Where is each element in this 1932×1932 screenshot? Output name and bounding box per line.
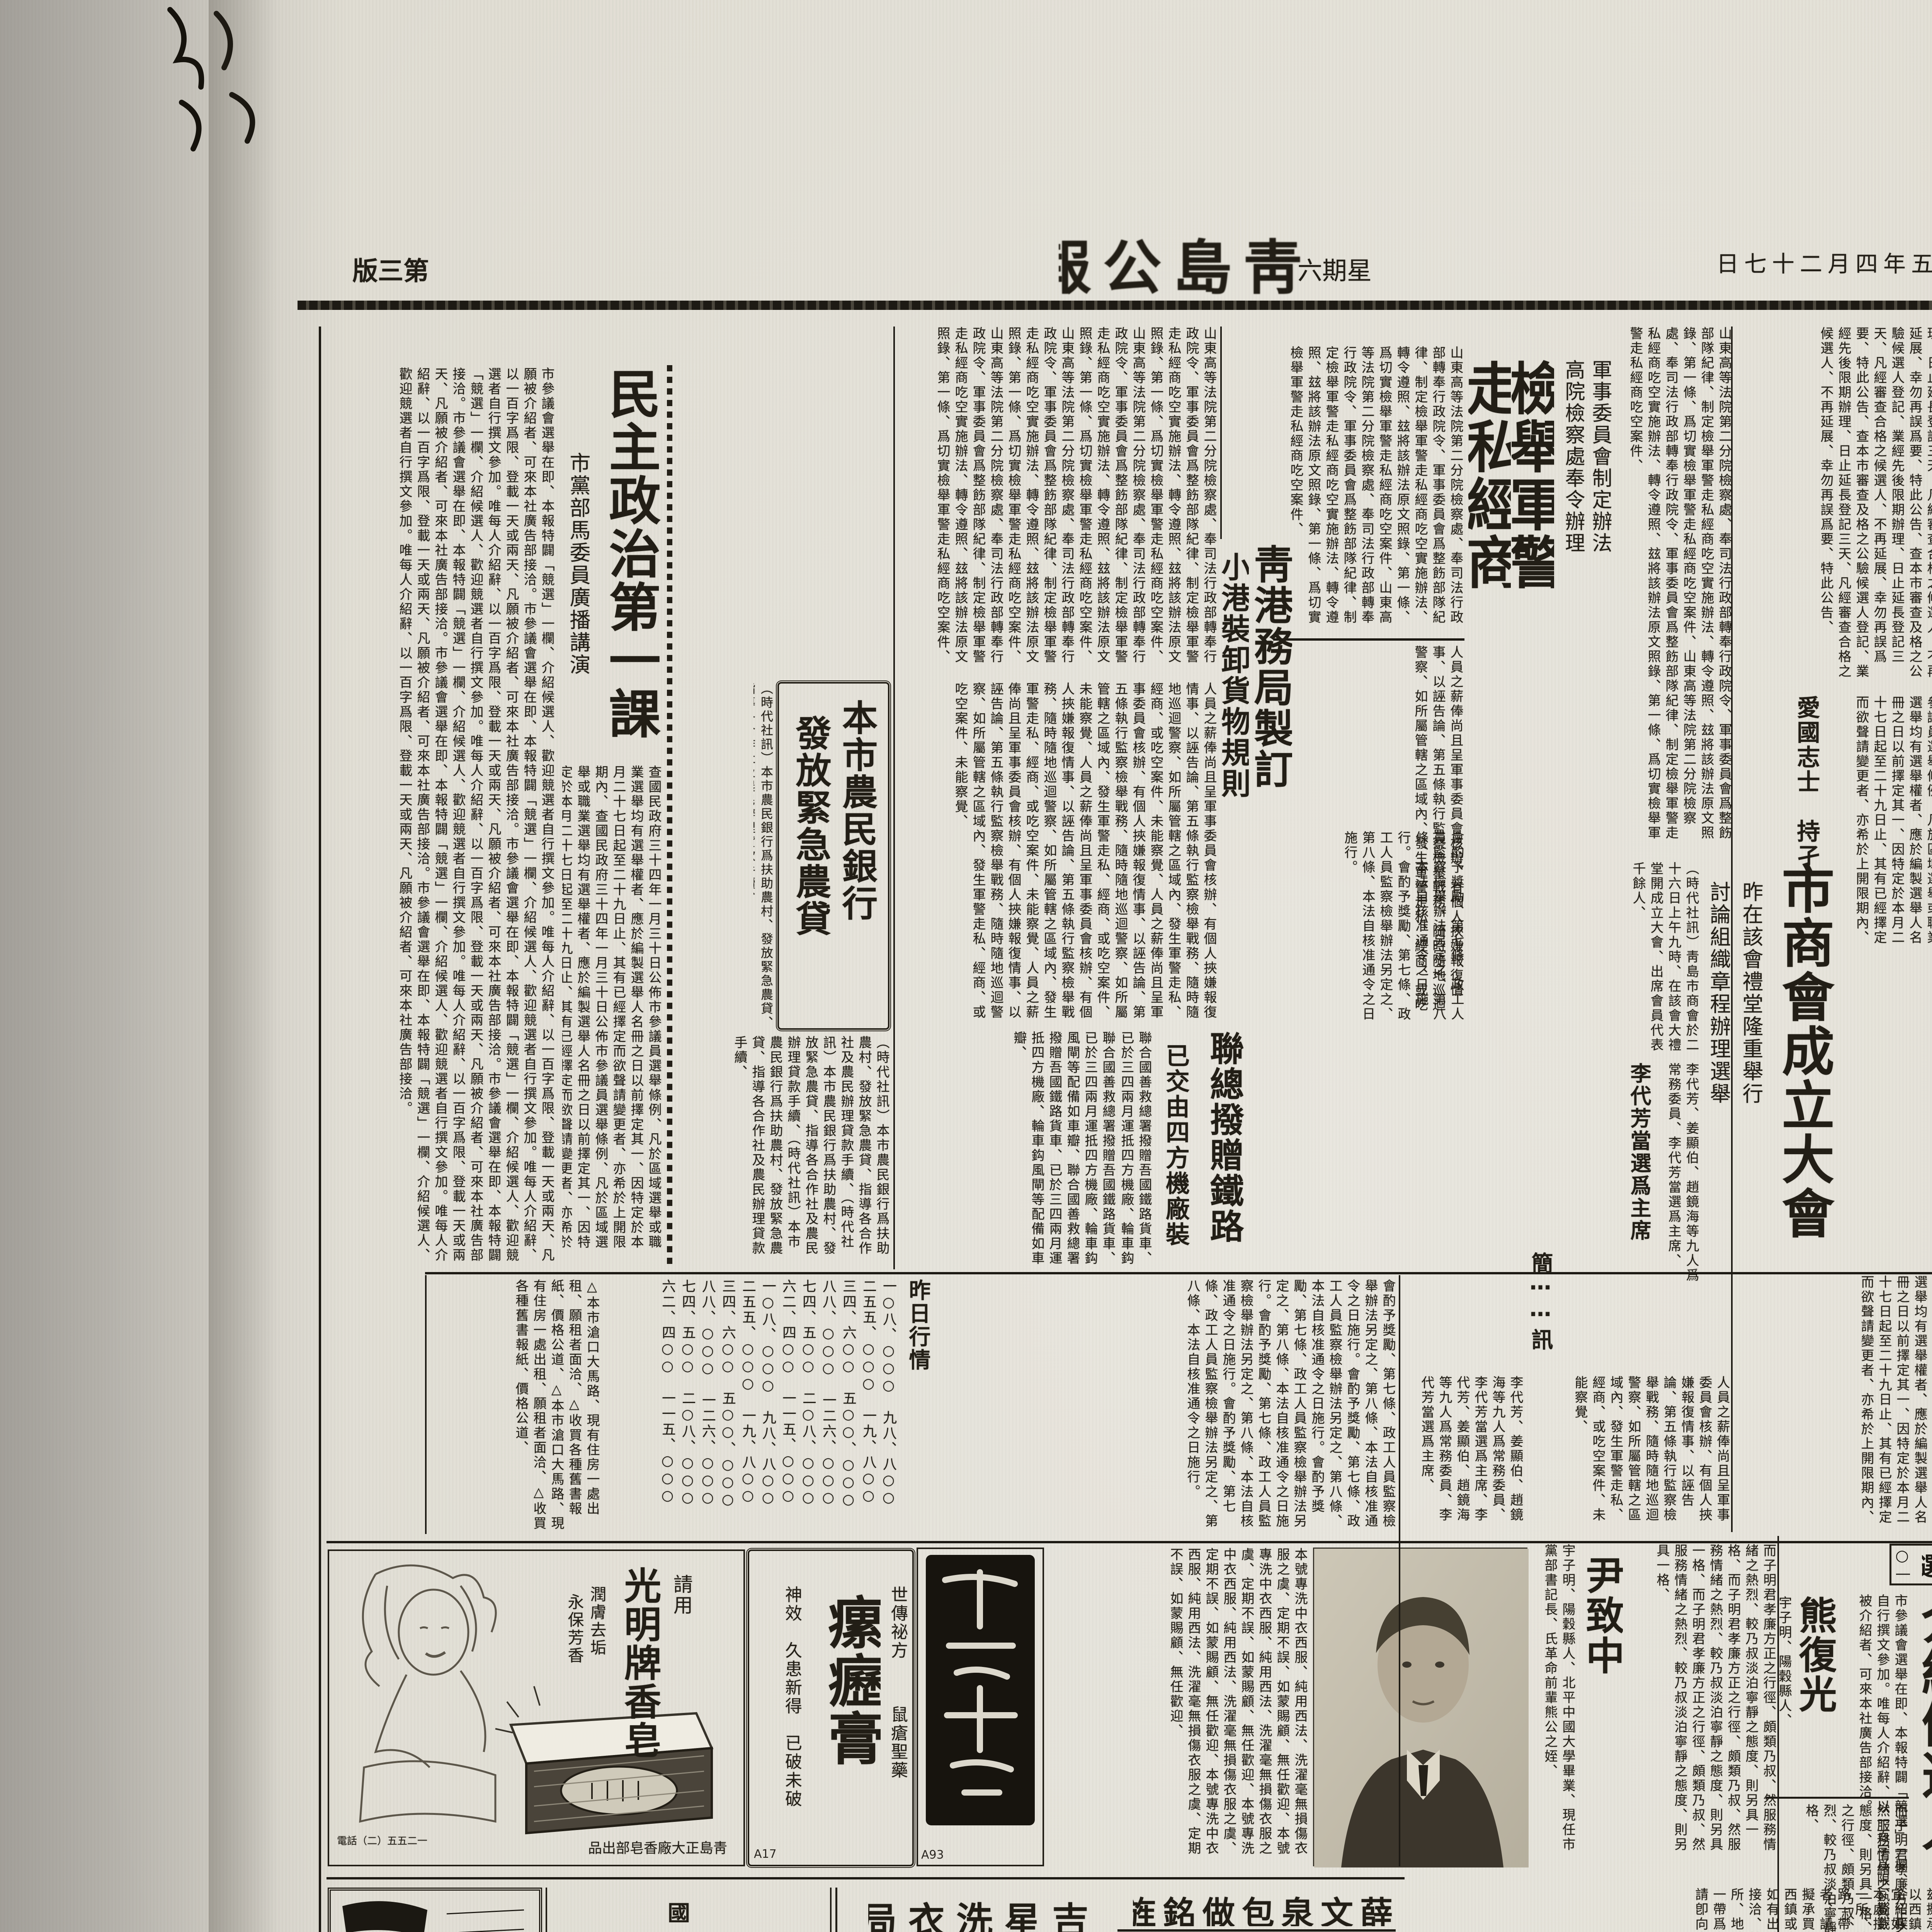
subhead-chamber-2: 討論組織章程辦理選舉 xyxy=(1703,881,1733,1236)
headline-introduce: 介紹候選人 xyxy=(1913,1594,1932,1868)
ad-soap-line1: 潤膚去垢 xyxy=(587,1586,607,1748)
ad-ointment-tag2: 鼠瘡聖藥 xyxy=(887,1706,908,1821)
article-xiong-left: 宇子明、陽穀縣人、 xyxy=(1770,1596,1793,1789)
headline-port-1: 靑港務局製訂 xyxy=(1249,544,1292,815)
ad-ointment-title: 瘰癧膏 xyxy=(823,1594,881,1810)
ad-ointment-addr2: 大學路北首 xyxy=(792,1839,900,1857)
ad-ointment-claims: 神效 久患新得 已破未破 負責除根 永不復發 xyxy=(765,1586,819,1810)
article-election-body: 查本市審查及格之公驗候選人登記、業經先後限期辦理、日止延長登記三天、凡經審查合格… xyxy=(1735,327,1932,686)
article-mid-c: 會酌予獎勵、第七條、政工人員監察檢舉辦法另定之、第八條、本法自核准通令之日施行。… xyxy=(937,1279,1397,1532)
rule-horizontal xyxy=(1117,1929,1396,1932)
ad-ointment-tag1: 世傳祕方 xyxy=(887,1586,908,1702)
rule-vertical xyxy=(319,327,321,1932)
article-smuggle-body2: 山東高等法院第二分院檢察處、奉司法行政部轉奉行政院令、軍事委員會爲整飭部隊紀律、… xyxy=(1273,346,1464,635)
rule-horizontal xyxy=(327,1541,1932,1543)
subhead-market: 昨日行情 xyxy=(902,1279,933,1406)
ad-soap-maker: 靑島正大廠香皂部出品 xyxy=(457,1837,727,1856)
headline-bank-2: 發放緊急農貸 xyxy=(789,715,832,1016)
subhead-smuggle-1: 軍事委員會制定辦法 xyxy=(1587,359,1613,607)
article-mid-d: 人員之薪俸尚且呈軍事委員會核辦、有個人挾嫌報復情事、以誣告論、第五條執行監察檢舉… xyxy=(1561,1376,1731,1530)
headline-democracy: 民主政治第一課 xyxy=(598,367,663,757)
ad-soap-phone: 電話（二）五五二一 xyxy=(337,1833,453,1856)
rule-vertical xyxy=(1220,327,1222,539)
headline-chamber: 市商會成立大會 xyxy=(1770,862,1837,1260)
page-number: 第三版 xyxy=(321,250,429,286)
headline-smuggle-2: 走私經商 xyxy=(1468,359,1511,607)
subhead-briefs: 簡⋯⋯訊 xyxy=(1526,1252,1554,1372)
headline-xiong: 熊復光 xyxy=(1793,1596,1836,1743)
scan-scribble xyxy=(147,2,286,180)
article-bank-body: （時代社訊）本市農民銀行爲扶助農村、發放緊急農貸、指導各合作社及農民辦理貸款手續… xyxy=(676,1036,891,1260)
article-port-body: 會酌予獎勵、第七條、政工人員監察檢舉辦法另定之、第八條、本法自核准通令之日施行。… xyxy=(1218,831,1465,1024)
article-mid-e: 查國民政府三十四年一月三十日公佈市參議員選舉條例、凡於區域選舉或職業選舉均有選舉… xyxy=(1735,1275,1932,1526)
ornament-chain xyxy=(667,365,672,1265)
ad-medicine-label: 國貨 xyxy=(644,1895,736,1922)
masthead-title: 靑島公報 xyxy=(1059,220,1314,298)
headline-unrra-2: 已交由四方機廠裝配中 xyxy=(1155,1043,1196,1267)
article-mid-a: 山東高等法院第二分院檢察處、奉司法行政部轉奉行政院令、軍事委員會爲整飭部隊紀律、… xyxy=(897,327,1218,676)
newspaper-scan: { "page":{"masthead":"靑島公報","edition":"第… xyxy=(0,0,1932,1932)
ad-soap-title: 光明牌香皂 xyxy=(618,1566,661,1806)
circle-ornament: ○— xyxy=(1895,1547,1922,1582)
article-unrra-side: 聯合國善救總署撥贈吾國鐵路貨車、已於三四兩月運抵四方機廠、輪車鈎風閘等配備如車瓣… xyxy=(1121,1031,1153,1269)
ad-decor-left: A18 xyxy=(328,1888,542,1932)
article-election-body2: 查國民政府三十四年一月三十日公佈市參議員選舉條例、凡於區域選舉或職業選舉均有選舉… xyxy=(1843,696,1932,951)
rule-horizontal xyxy=(327,1877,1405,1879)
ad-soap: 請用光明牌香皂潤膚去垢永保芳香靑島正大廠香皂部出品電話（二）五五二一 xyxy=(328,1549,745,1866)
ad-banner: 薛文泉包做銘旌旌式翻新、字題規矩、赤金方金以及泥金、色色鮮明、價目克己、如蒙惠顧… xyxy=(1110,1888,1400,1932)
ad-marker: A17 xyxy=(754,1847,777,1861)
ad-ointment-shop: 丁世德堂 xyxy=(761,1556,904,1578)
ad-laundry-title: 吉星洗衣局 xyxy=(868,1891,1100,1932)
article-chamber-body: （時代社訊）靑島市商會於二十六日上午九時、在該會大禮堂開成立大會、出席會員代表千… xyxy=(1609,862,1700,1055)
headline-smuggle-1: 檢舉軍警 xyxy=(1512,359,1554,607)
ad-brush: A93 xyxy=(917,1548,1044,1866)
ad-medicine-title: 梅壽聖藥 xyxy=(582,1930,814,1932)
article-democracy-body2: 查國民政府三十四年一月三十日公佈市參議員選舉條例、凡於區域選舉或職業選舉均有選舉… xyxy=(562,765,663,1264)
rule-vertical xyxy=(425,1275,427,1534)
ad-ointment-addr1: 登州路十六號甲 xyxy=(765,1818,900,1835)
subhead-chamber-1: 昨在該會禮堂隆重舉行 xyxy=(1736,881,1766,1236)
classified-left: △本市滄口大馬路、現有住房一處出租、願租者面洽、△收買各種舊書報紙、價格公道、△… xyxy=(429,1279,601,1533)
ad-soap-use: 請用 xyxy=(670,1574,693,1640)
rule-horizontal xyxy=(1766,1797,1909,1799)
subhead-smuggle-2: 高院檢察處奉令辦理 xyxy=(1560,359,1586,607)
rule-vertical xyxy=(1399,1275,1400,1866)
article-democracy-body: 市參議會選舉在即、本報特闢「競選」一欄、介紹候選人、歡迎競選者自行撰文參加。唯每… xyxy=(324,367,556,1264)
headline-bank-1: 本市農民銀行 xyxy=(835,699,879,1016)
article-briefs: 李代芳、姜顯伯、趙鏡海等九人爲常務委員、李代芳當選爲主席、李代芳、姜顯伯、趙鏡海… xyxy=(1401,1376,1524,1530)
article-introduce-body: 市參議會選舉在即、本報特闢「競選」一欄、介紹候選人、歡迎競選者自行撰文參加。唯每… xyxy=(1839,1594,1909,1932)
ad-ointment: 丁世德堂世傳祕方鼠瘡聖藥瘰癧膏神效 久患新得 已破未破 負責除根 永不復發登州路… xyxy=(748,1549,914,1866)
label-campaign: ○—競選—○ xyxy=(1889,1544,1932,1585)
headline-unrra-1: 聯總撥贈鐵路貨車 xyxy=(1201,1031,1248,1269)
ad-soap-line2: 永保芳香 xyxy=(565,1594,584,1756)
candidate-photo xyxy=(1313,1548,1527,1866)
ad-laundry: 吉星洗衣局本號專洗中衣西服純用西法洗濯毫無損傷衣服之虞定期不誤如蒙賜顧無任歡迎A… xyxy=(835,1888,1106,1932)
article-smuggle-body: 山東高等法院第二分院檢察處、奉司法行政部轉奉行政院令、軍事委員會爲整飭部隊紀律、… xyxy=(1617,327,1733,848)
ad-banner-title: 薛文泉包做銘旌 xyxy=(1133,1888,1400,1926)
article-chamber-body2: 李代芳、姜顯伯、趙鏡海等九人爲常務委員、李代芳當選爲主席、 xyxy=(1658,1063,1700,1294)
campaign-label: 競選 xyxy=(1922,1546,1932,1583)
article-unrra-body: 聯合國善救總署撥贈吾國鐵路貨車、已於三四兩月運抵四方機廠、輪車鈎風閘等配備如車瓣… xyxy=(937,1031,1117,1270)
classified-right: 玆擬承買房屋一所、地點以西鎮或廣西路一帶爲宜、如有出讓者、請卽向本處接洽、玆擬承… xyxy=(1403,1888,1932,1932)
publication-date: 中華民國三十五年四月二十七日 xyxy=(1519,246,1932,277)
headline-port-2: 小港裝卸貨物規則 xyxy=(1218,552,1249,815)
headline-yin: 尹致中 xyxy=(1581,1555,1623,1683)
rule-vertical xyxy=(893,327,895,1269)
rule-horizontal xyxy=(1273,638,1464,641)
paper-background: 第三版 星期六 靑島公報 中華民國三十五年四月二十七日 查國民政府三十四年一月三… xyxy=(0,0,1932,1932)
classified-mid: 本號專洗中衣西服、純用西法、洗濯毫無損傷衣服之虞、定期不誤、如蒙賜顧、無任歡迎、… xyxy=(1048,1548,1309,1866)
subhead-patriot: 愛國志士 持孑遺影 xyxy=(1774,696,1839,877)
subhead-democracy: 市黨部馬委員廣播講演 xyxy=(562,452,594,753)
article-mid-b: 人員之薪俸尚且呈軍事委員會核辦、有個人挾嫌報復情事、以誣告論、第五條執行監察檢舉… xyxy=(897,682,1218,1026)
ad-marker: A93 xyxy=(921,1848,944,1862)
article-bank-side: （時代社訊）本市農民銀行爲扶助農村、發放緊急農貸、指導各合作社及農民辦理貸款手續… xyxy=(753,682,775,1030)
subhead-chamber-3: 李代芳當選爲主席 xyxy=(1623,1063,1655,1294)
article-yin-body: 而子明君孝廉方正之行徑、頗類乃叔、然服務情緒之熱烈、較乃叔淡泊寧靜之態度、則另具… xyxy=(1625,1544,1777,1866)
article-candidate-side: 宇子明、陽穀縣人、北平中國大學畢業、現任市黨部書記長、氏革命前輩熊公之姪、 xyxy=(1530,1544,1577,1866)
market-prices: 一○八、○○○ 九八、八○○ 二五五、○○○ 一九、八○○ 三四、六○○ 五○○… xyxy=(605,1279,898,1532)
ad-medicine: 國貨梅壽聖藥主治科目、凡內外各科雜症、久服除根、價目低廉、如蒙賜顧、請認明商標、… xyxy=(546,1888,832,1932)
rule-horizontal xyxy=(425,1272,1932,1274)
masthead-rule xyxy=(298,301,1932,310)
rule-vertical xyxy=(1777,1536,1779,1932)
rule-vertical xyxy=(1731,327,1733,1532)
